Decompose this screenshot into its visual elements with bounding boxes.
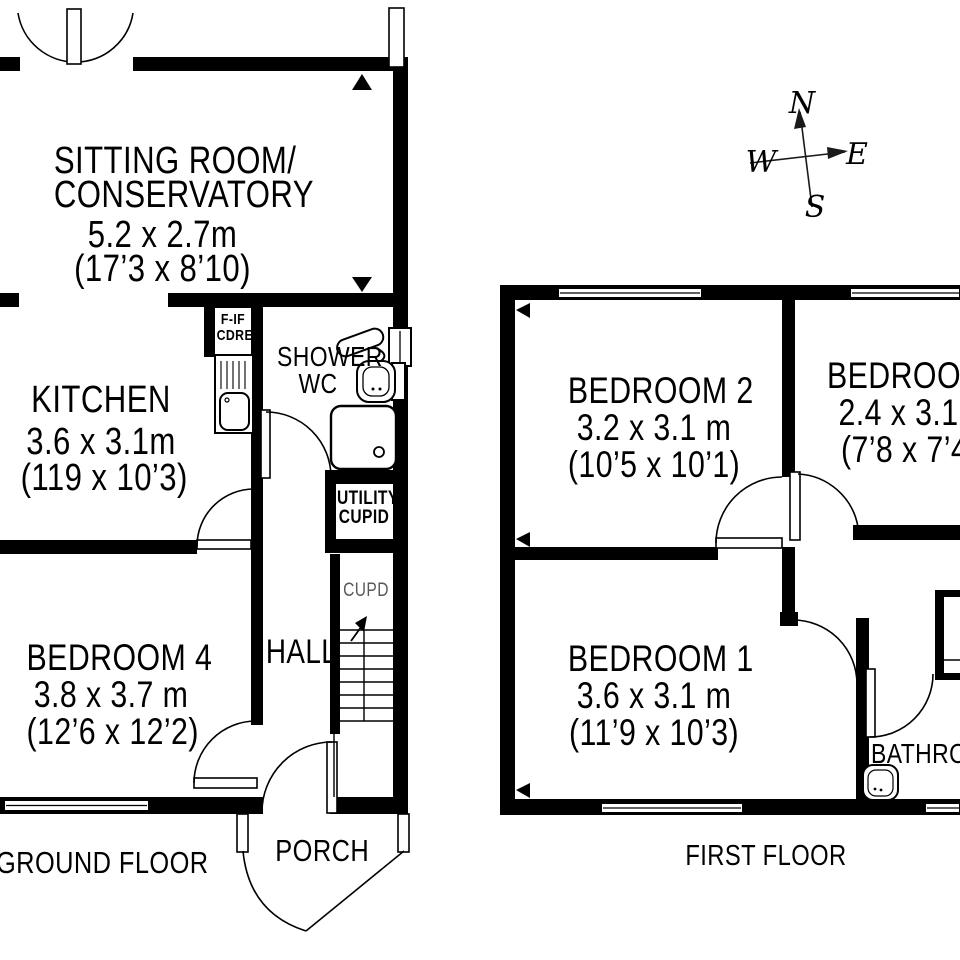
compass-north-label: N xyxy=(787,86,817,121)
shower-drain-icon xyxy=(374,447,384,457)
room-size-metric: 2.4 x 3.1 m xyxy=(838,394,960,431)
arrow-up-icon xyxy=(352,74,372,90)
arrow-left-icon xyxy=(516,303,530,318)
room-name: SITTING ROOM/ xyxy=(54,144,271,178)
bedroom-2-label: BEDROOM 2 3.2 x 3.1 m (10’5 x 10’1) xyxy=(568,372,740,483)
porch-label: PORCH xyxy=(275,833,350,869)
bedroom-3-label: BEDROOM 3 2.4 x 3.1 m (7’8 x 7’4) xyxy=(827,357,960,468)
bedroom4-door-arc xyxy=(194,721,256,783)
first-floor-title: FIRST FLOOR xyxy=(676,840,856,873)
bathroom-door-arc xyxy=(870,674,933,737)
shower-door-arc xyxy=(266,412,331,477)
shower-wc-label: SHOWER WC xyxy=(277,343,359,397)
compass-south-label: S xyxy=(800,190,830,225)
ground-floor-arrows xyxy=(352,74,372,292)
room-name: BEDROOM 4 xyxy=(27,639,196,676)
kitchen-label: KITCHEN 3.6 x 3.1m (119 x 10’3) xyxy=(21,382,182,496)
compass-west-label: W xyxy=(744,145,778,180)
exterior-door-leaf xyxy=(389,8,404,67)
kitchen-door-leaf xyxy=(197,540,251,549)
porch-jamb-right xyxy=(398,814,409,852)
room-size-imperial: (7’8 x 7’4) xyxy=(841,431,960,468)
bedroom2-door-leaf xyxy=(716,538,782,548)
bedroom3-door-leaf xyxy=(790,472,800,540)
room-size-imperial: (12’6 x 12’2) xyxy=(27,713,196,750)
bedroom-4-label: BEDROOM 4 3.8 x 3.7 m (12’6 x 12’2) xyxy=(27,639,196,750)
room-size-metric: 3.2 x 3.1 m xyxy=(568,409,740,446)
sitting-room-label: SITTING ROOM/ CONSERVATORY 5.2 x 2.7m (1… xyxy=(54,144,271,286)
sink-bowl-icon xyxy=(220,393,249,430)
room-name: SHOWER xyxy=(277,343,359,370)
front-door-leaf xyxy=(327,742,337,813)
room-name: BEDROOM 1 xyxy=(568,640,740,677)
room-size-imperial: (10’5 x 10’1) xyxy=(568,446,740,483)
room-size-metric: 5.2 x 2.7m xyxy=(54,218,271,252)
bedroom2-door-arc xyxy=(716,477,782,543)
room-size-metric: 3.6 x 3.1m xyxy=(21,424,182,460)
fridge-cupboard-label: F-IF CDRED xyxy=(217,312,250,344)
shower-door-leaf xyxy=(261,410,270,478)
room-size-imperial: (11’9 x 10’3) xyxy=(568,714,740,751)
hall-label: HALL xyxy=(266,633,328,672)
room-size-metric: 3.6 x 3.1 m xyxy=(568,677,740,714)
bathroom-door-leaf xyxy=(866,669,875,737)
room-size-imperial: (119 x 10’3) xyxy=(21,460,182,496)
room-name: CONSERVATORY xyxy=(54,178,271,212)
bedroom-1-label: BEDROOM 1 3.6 x 3.1 m (11’9 x 10’3) xyxy=(568,640,740,751)
arrow-down-icon xyxy=(352,277,372,292)
first-floor-doors xyxy=(716,472,933,737)
front-door-arc xyxy=(262,742,332,812)
floorplan-page: SITTING ROOM/ CONSERVATORY 5.2 x 2.7m (1… xyxy=(0,0,960,960)
room-name: BEDROOM 2 xyxy=(568,372,740,409)
room-size-metric: 3.8 x 3.7 m xyxy=(27,676,196,713)
room-name: WC xyxy=(277,370,359,397)
ground-floor-doors xyxy=(194,410,337,813)
compass-east-label: E xyxy=(842,137,872,172)
arrow-left-icon xyxy=(516,783,530,798)
utility-cupboard-label: UTILITY CUPID xyxy=(337,489,391,527)
stairs-cupboard-label: CUPD xyxy=(343,580,389,602)
room-name: KITCHEN xyxy=(21,382,182,418)
arrow-left-icon xyxy=(516,532,530,547)
bedroom1-door-arc xyxy=(793,620,857,684)
room-size-imperial: (17’3 x 8’10) xyxy=(54,252,271,286)
bedroom4-door-leaf xyxy=(194,778,257,788)
kitchen-door-arc xyxy=(197,489,254,546)
porch-structure xyxy=(237,814,409,931)
porch-jamb-left xyxy=(237,814,248,852)
bathroom-label: BATHROOM xyxy=(871,738,960,770)
bedroom3-door-arc xyxy=(798,474,858,527)
room-name: BEDROOM 3 xyxy=(827,357,960,394)
stairs xyxy=(334,616,394,797)
shower-tray-icon xyxy=(331,406,396,469)
ground-floor-title: GROUND FLOOR xyxy=(0,845,209,881)
